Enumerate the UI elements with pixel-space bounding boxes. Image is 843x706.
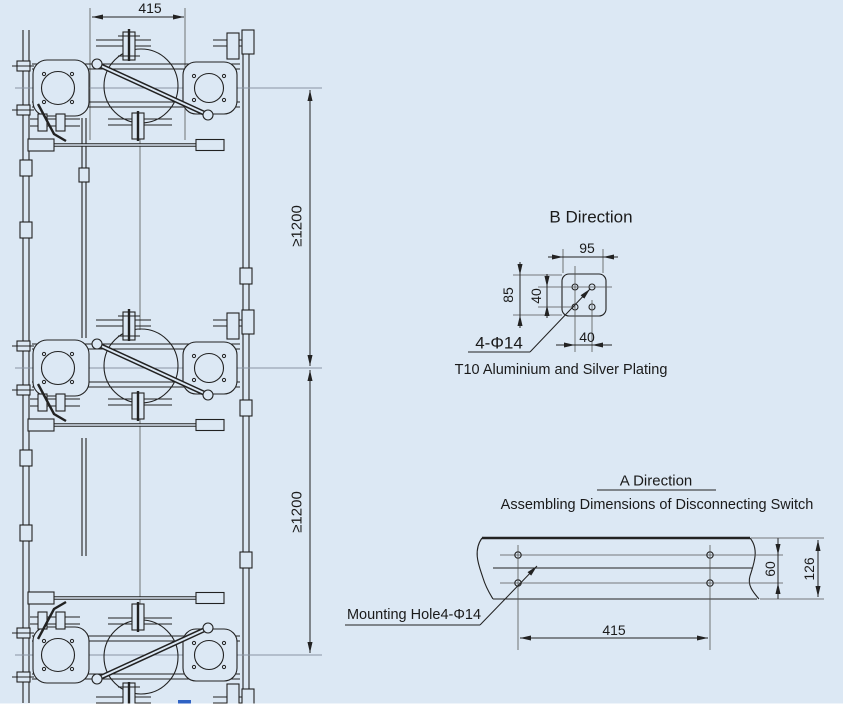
dim-lower-spacing-label: ≥1200 xyxy=(290,491,305,533)
b-direction-caption: T10 Aluminium and Silver Plating xyxy=(455,363,668,378)
drawing-canvas xyxy=(0,0,843,706)
b-dim-hole-v-label: 40 xyxy=(529,288,543,304)
a-direction-title: A Direction xyxy=(620,474,693,489)
a-direction-subtitle: Assembling Dimensions of Disconnecting S… xyxy=(501,498,814,513)
b-direction-title: B Direction xyxy=(549,209,632,226)
dim-upper-spacing-label: ≥1200 xyxy=(290,205,305,247)
technical-drawing-page: { "colors": { "background": "#dce8f4", "… xyxy=(0,0,843,706)
b-holes-label: 4-Φ14 xyxy=(475,335,523,352)
b-dim-plate-height-label: 85 xyxy=(501,287,515,303)
a-holes-label: Mounting Hole4-Φ14 xyxy=(347,608,481,623)
caret-artifact xyxy=(178,700,191,704)
a-dim-hole-rows-label: 60 xyxy=(763,561,777,577)
a-dim-hole-span-label: 415 xyxy=(602,623,625,637)
b-dim-hole-h-label: 40 xyxy=(579,330,595,344)
b-dim-plate-width-label: 95 xyxy=(579,241,595,255)
dim-top-width-label: 415 xyxy=(138,1,161,15)
a-dim-beam-height-label: 126 xyxy=(802,557,816,580)
